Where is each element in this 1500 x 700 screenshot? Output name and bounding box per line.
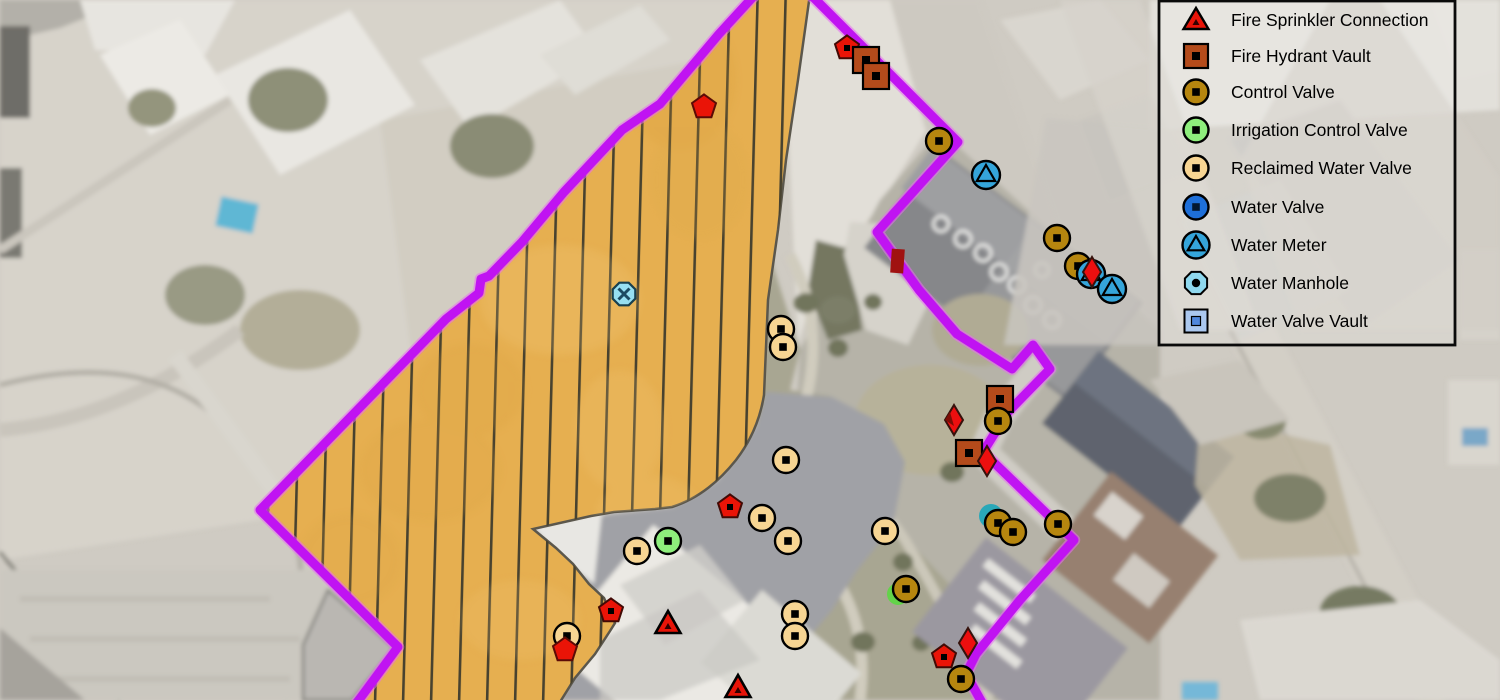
svg-text:Reclaimed Water Valve: Reclaimed Water Valve (1231, 158, 1412, 178)
svg-text:Water Meter: Water Meter (1231, 235, 1327, 255)
svg-text:Water Valve Vault: Water Valve Vault (1231, 311, 1368, 331)
svg-text:Water Valve: Water Valve (1231, 197, 1324, 217)
svg-text:Control Valve: Control Valve (1231, 82, 1335, 102)
svg-text:Water Manhole: Water Manhole (1231, 273, 1349, 293)
svg-text:Fire Hydrant Vault: Fire Hydrant Vault (1231, 46, 1371, 66)
svg-text:Fire Sprinkler Connection: Fire Sprinkler Connection (1231, 10, 1428, 30)
svg-text:Irrigation Control Valve: Irrigation Control Valve (1231, 120, 1408, 140)
